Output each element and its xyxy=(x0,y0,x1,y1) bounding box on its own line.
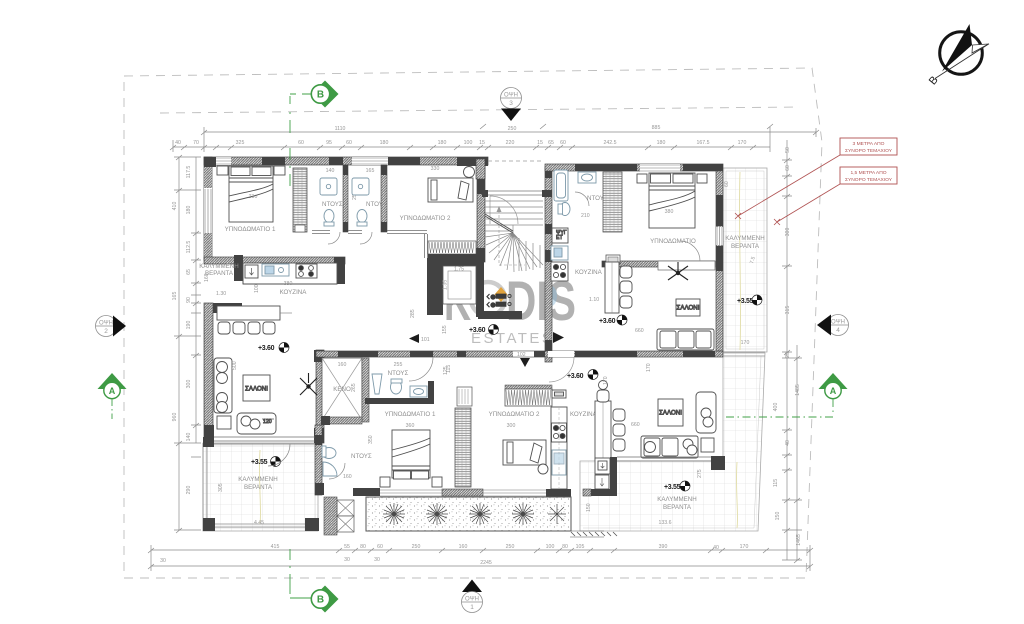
svg-text:165: 165 xyxy=(172,292,178,301)
svg-text:305: 305 xyxy=(218,483,224,492)
svg-text:170: 170 xyxy=(740,544,749,550)
svg-text:60: 60 xyxy=(724,181,730,187)
svg-text:ΒΕΡΑΝΤΑ: ΒΕΡΑΝΤΑ xyxy=(244,484,273,491)
svg-text:ΟΨΗ: ΟΨΗ xyxy=(99,321,113,327)
svg-text:+3.55: +3.55 xyxy=(664,484,681,491)
svg-text:ΟΨΗ: ΟΨΗ xyxy=(465,597,479,603)
svg-text:150: 150 xyxy=(586,503,592,512)
svg-text:170: 170 xyxy=(738,140,747,146)
svg-text:ΚΑΛΥΜΜΕΝΗ: ΚΑΛΥΜΜΕΝΗ xyxy=(238,476,277,483)
svg-text:ΥΠΝΟΔΩΜΑΤΙΟ 2: ΥΠΝΟΔΩΜΑΤΙΟ 2 xyxy=(400,215,451,222)
svg-text:A: A xyxy=(109,386,116,396)
svg-text:101: 101 xyxy=(421,337,430,343)
svg-text:160: 160 xyxy=(338,362,347,368)
svg-text:ΣΑΛΟΝΙ: ΣΑΛΟΝΙ xyxy=(245,386,268,393)
svg-text:180: 180 xyxy=(186,206,192,215)
svg-text:65: 65 xyxy=(186,269,192,275)
svg-text:133.6: 133.6 xyxy=(659,520,672,526)
svg-text:B: B xyxy=(317,595,324,606)
svg-text:4.45: 4.45 xyxy=(254,520,264,526)
svg-text:ΚΑΛΥΜΜΕΝΗ: ΚΑΛΥΜΜΕΝΗ xyxy=(725,235,764,242)
svg-text:242.5: 242.5 xyxy=(604,140,617,146)
svg-text:102: 102 xyxy=(517,352,526,358)
svg-text:170: 170 xyxy=(646,363,652,372)
svg-text:ΚΟΥΖΙΝΑ: ΚΟΥΖΙΝΑ xyxy=(575,269,603,276)
svg-text:170: 170 xyxy=(603,376,609,385)
svg-text:155: 155 xyxy=(442,325,448,334)
svg-text:ΥΠΝΟΔΩΜΑΤΙΟ 1: ΥΠΝΟΔΩΜΑΤΙΟ 1 xyxy=(225,226,276,233)
svg-text:+3.60: +3.60 xyxy=(258,345,275,352)
svg-text:165: 165 xyxy=(366,168,375,174)
svg-text:ΚΑΛΥΜΜΕΝΗ: ΚΑΛΥΜΜΕΝΗ xyxy=(657,496,696,503)
svg-text:ΝΤΟΥΣ: ΝΤΟΥΣ xyxy=(322,201,343,208)
svg-text:190: 190 xyxy=(186,321,192,330)
svg-text:60: 60 xyxy=(346,140,352,146)
svg-text:30: 30 xyxy=(374,557,380,563)
svg-text:30: 30 xyxy=(160,558,166,564)
svg-text:1485: 1485 xyxy=(795,384,801,396)
svg-text:80: 80 xyxy=(562,544,568,550)
svg-text:100: 100 xyxy=(464,140,473,146)
svg-text:ΒΕΡΑΝΤΑ: ΒΕΡΑΝΤΑ xyxy=(663,504,692,511)
svg-text:60: 60 xyxy=(560,140,566,146)
svg-text:2: 2 xyxy=(104,328,108,335)
svg-text:300: 300 xyxy=(785,228,791,237)
svg-text:1465: 1465 xyxy=(796,534,802,546)
svg-text:90: 90 xyxy=(186,297,192,303)
svg-text:ΥΠΝΟΔΩΜΑΤΙΟ 2: ΥΠΝΟΔΩΜΑΤΙΟ 2 xyxy=(489,411,540,418)
svg-text:40: 40 xyxy=(785,440,791,446)
svg-text:150: 150 xyxy=(775,512,781,521)
svg-text:ΟΨΗ: ΟΨΗ xyxy=(831,320,845,326)
svg-text:50: 50 xyxy=(785,147,791,153)
svg-text:3 ΜΕΤΡΑ ΑΠΟ: 3 ΜΕΤΡΑ ΑΠΟ xyxy=(853,141,885,147)
svg-text:1.10: 1.10 xyxy=(589,297,599,303)
svg-text:95: 95 xyxy=(326,140,332,146)
svg-text:55: 55 xyxy=(344,544,350,550)
svg-text:315: 315 xyxy=(785,306,791,315)
svg-text:500: 500 xyxy=(232,361,238,370)
svg-text:330: 330 xyxy=(431,166,440,172)
svg-text:ΣΑΛΟΝΙ: ΣΑΛΟΝΙ xyxy=(659,410,682,417)
svg-text:160: 160 xyxy=(343,474,352,480)
svg-text:100: 100 xyxy=(254,284,260,293)
svg-text:275: 275 xyxy=(697,469,703,478)
svg-text:ΚΟΥΖΙΝΑ: ΚΟΥΖΙΝΑ xyxy=(280,289,308,296)
svg-text:ΒΕΡΑΝΤΑ: ΒΕΡΑΝΤΑ xyxy=(731,243,760,250)
svg-text:+3.60: +3.60 xyxy=(599,318,616,325)
svg-text:410: 410 xyxy=(172,202,178,211)
svg-text:285: 285 xyxy=(410,309,416,318)
svg-text:300: 300 xyxy=(186,380,192,389)
svg-text:A: A xyxy=(830,386,837,396)
svg-text:250: 250 xyxy=(412,544,421,550)
svg-text:1,5 ΜΕΤΡΑ ΑΠΟ: 1,5 ΜΕΤΡΑ ΑΠΟ xyxy=(850,170,886,176)
svg-text:160: 160 xyxy=(459,544,468,550)
svg-text:60: 60 xyxy=(785,165,791,171)
svg-text:+3.60: +3.60 xyxy=(567,373,584,380)
svg-text:380: 380 xyxy=(284,281,293,287)
svg-text:ΚΟΥΖΙΝΑ: ΚΟΥΖΙΝΑ xyxy=(570,411,598,418)
svg-text:80: 80 xyxy=(360,544,366,550)
svg-text:1.35: 1.35 xyxy=(443,280,449,290)
svg-text:ΝΤΟΥΣ: ΝΤΟΥΣ xyxy=(388,370,409,377)
svg-text:180: 180 xyxy=(380,140,389,146)
svg-text:117.5: 117.5 xyxy=(186,166,192,179)
svg-text:960: 960 xyxy=(172,413,178,422)
svg-text:115: 115 xyxy=(446,365,452,373)
svg-text:112.5: 112.5 xyxy=(186,241,192,254)
svg-text:1.75: 1.75 xyxy=(454,267,464,273)
svg-text:180: 180 xyxy=(657,140,666,146)
svg-text:1: 1 xyxy=(470,604,474,611)
svg-text:ΚΑΛΥΜΜΕΝΗ: ΚΑΛΥΜΜΕΝΗ xyxy=(199,263,238,270)
svg-text:ΝΤΟΥΣ: ΝΤΟΥΣ xyxy=(351,453,372,460)
svg-text:ΕΤ: ΕΤ xyxy=(556,235,563,241)
svg-text:167.5: 167.5 xyxy=(697,140,710,146)
svg-text:140: 140 xyxy=(326,168,335,174)
svg-text:660: 660 xyxy=(631,422,640,428)
svg-text:60: 60 xyxy=(377,544,383,550)
svg-text:60: 60 xyxy=(298,140,304,146)
svg-text:30: 30 xyxy=(344,557,350,563)
svg-text:1.30: 1.30 xyxy=(216,291,226,297)
svg-text:65: 65 xyxy=(548,140,554,146)
svg-text:ΟΨΗ: ΟΨΗ xyxy=(504,93,518,99)
svg-text:ΣΥΝΟΡΟ ΤΕΜΑΧΙΟΥ: ΣΥΝΟΡΟ ΤΕΜΑΧΙΟΥ xyxy=(845,177,893,183)
svg-text:400: 400 xyxy=(773,403,779,412)
svg-text:160: 160 xyxy=(204,273,210,282)
svg-text:100: 100 xyxy=(546,544,555,550)
svg-text:+3.60: +3.60 xyxy=(469,327,486,334)
svg-text:40: 40 xyxy=(175,140,181,146)
svg-text:B: B xyxy=(317,90,324,101)
svg-text:40: 40 xyxy=(713,545,719,551)
svg-text:70: 70 xyxy=(193,140,199,146)
svg-text:140: 140 xyxy=(186,433,192,442)
svg-text:390: 390 xyxy=(659,544,668,550)
svg-text:ΚΕΝΟ: ΚΕΝΟ xyxy=(333,386,351,393)
svg-text:265: 265 xyxy=(351,383,357,392)
svg-text:15: 15 xyxy=(537,140,543,146)
svg-text:325: 325 xyxy=(236,140,245,146)
svg-text:3: 3 xyxy=(509,100,513,107)
svg-text:380: 380 xyxy=(665,209,674,215)
svg-text:360: 360 xyxy=(406,423,415,429)
svg-text:ΥΠΝΟΔΩΜΑΤΙΟ 1: ΥΠΝΟΔΩΜΑΤΙΟ 1 xyxy=(385,411,436,418)
svg-text:250: 250 xyxy=(508,126,517,132)
svg-text:2245: 2245 xyxy=(480,560,492,566)
svg-text:115: 115 xyxy=(773,479,779,487)
svg-text:300: 300 xyxy=(507,423,516,429)
svg-text:350: 350 xyxy=(368,435,374,444)
svg-text:ΥΠΝΟΔΩΜΑΤΙΟ: ΥΠΝΟΔΩΜΑΤΙΟ xyxy=(650,238,696,245)
svg-text:120: 120 xyxy=(263,419,272,425)
svg-text:250: 250 xyxy=(506,544,515,550)
svg-text:+3.55: +3.55 xyxy=(251,459,268,466)
svg-text:255: 255 xyxy=(394,362,403,368)
svg-text:210: 210 xyxy=(581,213,590,219)
svg-text:25: 25 xyxy=(785,352,791,358)
svg-text:ΣΑΛΟΝΙ: ΣΑΛΟΝΙ xyxy=(677,305,700,312)
svg-text:180: 180 xyxy=(438,140,447,146)
svg-text:415: 415 xyxy=(271,544,280,550)
svg-text:220: 220 xyxy=(506,140,515,146)
svg-text:ΣΥΝΟΡΟ ΤΕΜΑΧΙΟΥ: ΣΥΝΟΡΟ ΤΕΜΑΧΙΟΥ xyxy=(845,148,893,154)
svg-text:170: 170 xyxy=(741,340,750,346)
svg-text:660: 660 xyxy=(635,328,644,334)
svg-text:290: 290 xyxy=(186,486,192,495)
svg-text:885: 885 xyxy=(652,125,661,131)
svg-text:1110: 1110 xyxy=(335,126,346,132)
svg-text:+3.55: +3.55 xyxy=(737,298,754,305)
svg-text:105: 105 xyxy=(576,544,585,550)
svg-text:4: 4 xyxy=(836,327,840,334)
svg-text:15: 15 xyxy=(479,140,485,146)
